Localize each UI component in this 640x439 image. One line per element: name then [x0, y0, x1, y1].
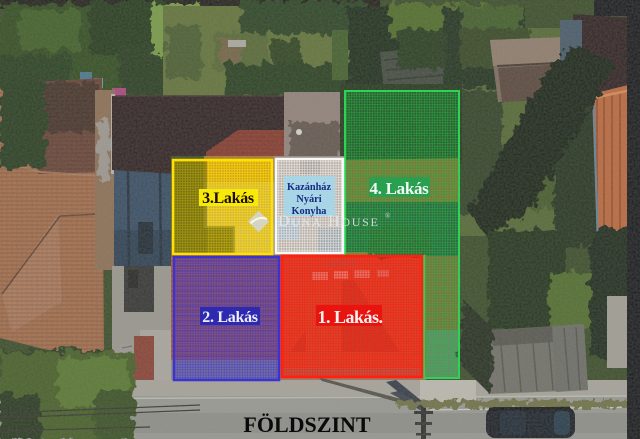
svg-text:Nyári: Nyári: [296, 194, 321, 205]
svg-text:Konyha: Konyha: [292, 206, 327, 217]
svg-text:Kazánház: Kazánház: [287, 182, 331, 193]
svg-text:3.Lakás: 3.Lakás: [202, 190, 254, 207]
svg-text:1. Lakás.: 1. Lakás.: [317, 307, 382, 327]
svg-text:4. Lakás: 4. Lakás: [369, 179, 429, 198]
svg-text:FÖLDSZINT: FÖLDSZINT: [243, 412, 370, 437]
svg-text:2. Lakás: 2. Lakás: [202, 309, 257, 326]
svg-text:®: ®: [385, 212, 391, 220]
